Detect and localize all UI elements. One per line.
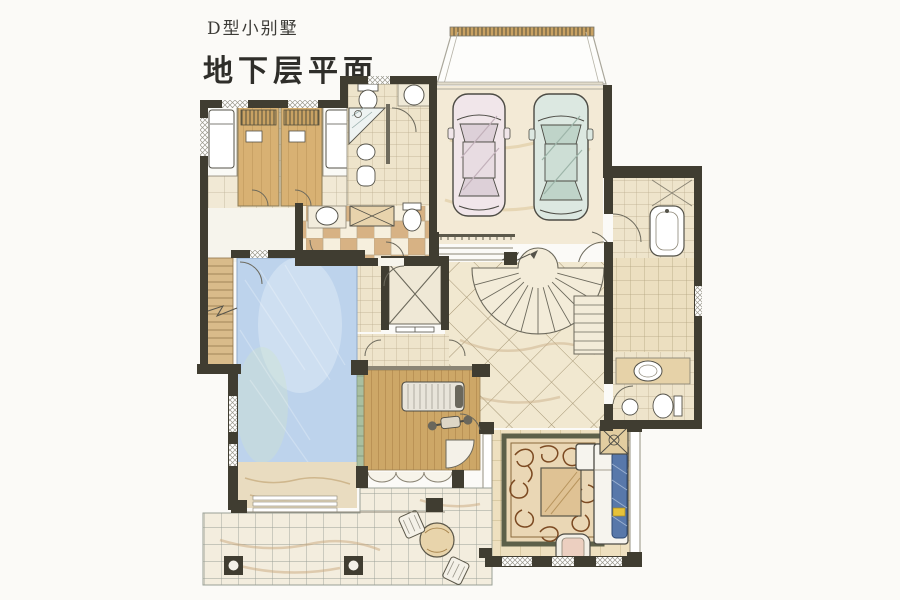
driveway-ramp: [437, 27, 606, 84]
family-room: [483, 427, 640, 564]
garage: [437, 82, 612, 260]
car-right: [529, 94, 593, 220]
treadmill-icon: [402, 382, 464, 411]
sink-icon: [357, 144, 375, 160]
pool-beach-entry: [237, 462, 357, 508]
spa-suite: [207, 84, 433, 262]
pedestal-sink-icon: [622, 399, 638, 415]
patio-column: [224, 556, 243, 575]
bidet-icon: [357, 166, 375, 186]
bathtub-icon: [650, 206, 684, 256]
toilet-icon: [653, 394, 673, 418]
guest-bathroom: [613, 352, 694, 420]
car-left: [448, 94, 510, 216]
toilet-icon: [359, 90, 377, 110]
pool-steps: [253, 496, 337, 500]
round-basin-icon: [404, 85, 424, 105]
gym-deck: [362, 366, 480, 482]
pool-gutter: [357, 368, 364, 468]
sauna-bench-2: [284, 110, 319, 125]
indoor-pool: [236, 257, 364, 512]
floorplan-drawing: [0, 0, 900, 600]
toilet-icon: [403, 209, 421, 231]
right-corridor: [613, 258, 694, 352]
window-band-right: [630, 430, 640, 554]
patio-door-scallops: [368, 472, 452, 482]
patio-column: [344, 556, 363, 575]
massage-bed-left: [209, 110, 234, 168]
sink-icon: [634, 361, 662, 381]
sauna-bench-1: [241, 110, 276, 125]
pool-stair: [205, 258, 237, 366]
side-table-icon: [600, 427, 628, 454]
floorplan-page: D型小别墅 地下层平面: [0, 0, 900, 600]
elevator: [357, 256, 465, 368]
sink-icon: [316, 207, 338, 225]
spa-bathroom: [347, 84, 433, 208]
